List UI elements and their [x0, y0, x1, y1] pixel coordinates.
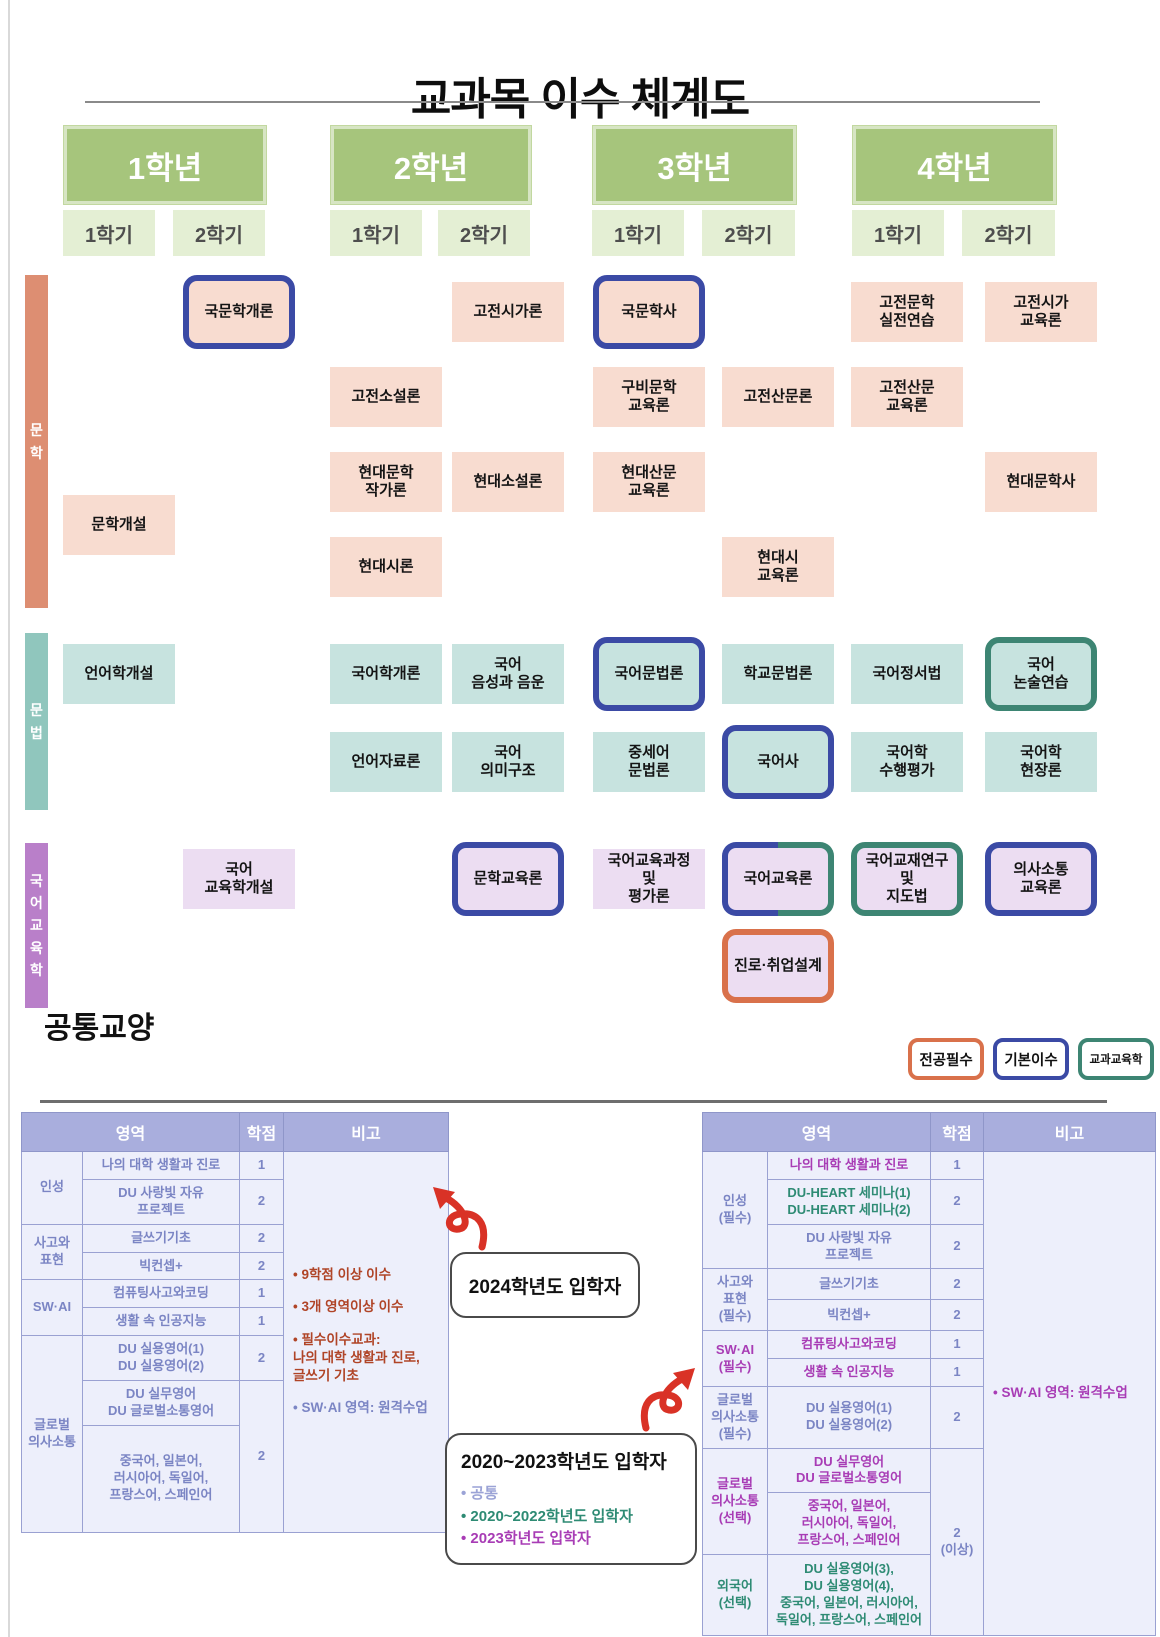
table-cell: 중국어, 일본어, 러시아어, 독일어, 프랑스어, 스페인어	[83, 1425, 240, 1532]
course-box: 구비문학 교육론	[593, 367, 705, 427]
table-cell: 1	[931, 1331, 984, 1359]
table-cell: 사고와 표현	[22, 1224, 83, 1280]
course-box: 의사소통 교육론	[985, 842, 1097, 916]
table-cell: DU 사랑빛 자유 프로젝트	[83, 1179, 240, 1224]
callout-bullet: • 2020~2022학년도 입학자	[461, 1506, 683, 1529]
table-cell: DU 실용영어(3), DU 실용영어(4), 중국어, 일본어, 러시아어, …	[768, 1555, 931, 1636]
note-cell: • 9학점 이상 이수• 3개 영역이상 이수• 필수이수교과: 나의 대학 생…	[284, 1152, 449, 1533]
course-box: 현대문학 작가론	[330, 452, 442, 512]
table-cell: DU 실용영어(1) DU 실용영어(2)	[768, 1386, 931, 1448]
callout-bullet-list: • 공통• 2020~2022학년도 입학자• 2023학년도 입학자	[461, 1483, 683, 1551]
callout-2024-entrants: 2024학년도 입학자	[450, 1252, 640, 1318]
course-box: 국어학개론	[330, 644, 442, 704]
section-bar-gram: 문 법	[25, 633, 48, 810]
legend-item-subject: 교과교육학	[1078, 1038, 1154, 1080]
table-cell: 2	[240, 1224, 284, 1252]
course-box: 문학개설	[63, 495, 175, 555]
table-cell: SW·AI	[22, 1280, 83, 1336]
callout-title: 2020~2023학년도 입학자	[461, 1447, 683, 1474]
callout-bullet: • 2023학년도 입학자	[461, 1528, 683, 1551]
course-box: 현대산문 교육론	[593, 452, 705, 512]
callout-2020-2023-entrants: 2020~2023학년도 입학자 • 공통• 2020~2022학년도 입학자•…	[445, 1433, 697, 1565]
year-header-4: 4학년	[852, 125, 1057, 205]
semester-header: 2학기	[438, 210, 530, 256]
course-box: 국어학 수행평가	[851, 732, 963, 792]
course-box: 국어문법론	[593, 637, 705, 711]
year-header-3: 3학년	[592, 125, 797, 205]
table-cell: 생활 속 인공지능	[768, 1359, 931, 1387]
column-header: 학점	[931, 1113, 984, 1152]
course-box: 국어정서법	[851, 644, 963, 704]
table-cell: 컴퓨팅사고와코딩	[83, 1280, 240, 1308]
table-cell: 글로벌 의사소통 (선택)	[703, 1448, 768, 1554]
table-cell: 인성	[22, 1152, 83, 1225]
course-box: 현대소설론	[452, 452, 564, 512]
semester-header: 1학기	[852, 210, 944, 256]
table-header-row: 영역학점비고	[22, 1113, 449, 1152]
table-cell: 생활 속 인공지능	[83, 1308, 240, 1336]
semester-header: 2학기	[962, 210, 1055, 256]
table-cell: 외국어 (선택)	[703, 1555, 768, 1636]
table-cell: 1	[240, 1308, 284, 1336]
course-box: 국어교재연구 및 지도법	[851, 842, 963, 916]
table-cell: 컴퓨팅사고와코딩	[768, 1331, 931, 1359]
course-box: 국어 논술연습	[985, 637, 1097, 711]
year-header-1: 1학년	[63, 125, 267, 205]
table-cell: DU-HEART 세미나(1) DU-HEART 세미나(2)	[768, 1179, 931, 1224]
table-cell: 1	[931, 1152, 984, 1180]
table-header-row: 영역학점비고	[703, 1113, 1156, 1152]
course-box: 국어 음성과 음운	[452, 644, 564, 704]
table-row: 인성 (필수)나의 대학 생활과 진로1• SW·AI 영역: 원격수업	[703, 1152, 1156, 1180]
course-box: 고전산문론	[722, 367, 834, 427]
red-curved-arrow-up-right-icon	[636, 1358, 698, 1432]
table-cell: 2	[931, 1224, 984, 1269]
course-box: 국문학사	[593, 275, 705, 349]
note-item: • 9학점 이상 이수	[293, 1266, 444, 1284]
legend-item-basic: 기본이수	[993, 1038, 1069, 1080]
table-cell: 글로벌 의사소통 (필수)	[703, 1386, 768, 1448]
course-box: 학교문법론	[722, 644, 834, 704]
semester-header: 1학기	[592, 210, 684, 256]
table-cell: 빅컨셉+	[83, 1252, 240, 1280]
table-cell: 2	[240, 1381, 284, 1533]
semester-header: 1학기	[330, 210, 422, 256]
semester-header: 2학기	[173, 210, 265, 256]
course-box: 고전문학 실전연습	[851, 282, 963, 342]
table-row: 인성나의 대학 생활과 진로1• 9학점 이상 이수• 3개 영역이상 이수• …	[22, 1152, 449, 1180]
course-box: 국어학 현장론	[985, 732, 1097, 792]
course-box: 언어자료론	[330, 732, 442, 792]
page-title: 교과목 이수 체계도	[0, 63, 1160, 127]
table-cell: 인성 (필수)	[703, 1152, 768, 1269]
table-cell: DU 실용영어(1) DU 실용영어(2)	[83, 1336, 240, 1381]
table-cell: 중국어, 일본어, 러시아어, 독일어, 프랑스어, 스페인어	[768, 1493, 931, 1555]
common-liberal-arts-title: 공통교양	[44, 1003, 154, 1047]
table-cell: SW·AI (필수)	[703, 1331, 768, 1387]
table-cell: 나의 대학 생활과 진로	[83, 1152, 240, 1180]
course-box: 국문학개론	[183, 275, 295, 349]
table-cell: DU 실무영어 DU 글로벌소통영어	[83, 1381, 240, 1426]
note-item: • 3개 영역이상 이수	[293, 1298, 444, 1316]
table-cell: 1	[240, 1280, 284, 1308]
column-header: 비고	[284, 1113, 449, 1152]
legend-item-major: 전공필수	[908, 1038, 984, 1080]
section-bar-edu: 국 어 교 육 학	[25, 843, 48, 1008]
table-cell: 2	[931, 1179, 984, 1224]
course-box: 진로·취업설계	[722, 929, 834, 1003]
table-cell: 글로벌 의사소통	[22, 1336, 83, 1533]
course-box: 고전산문 교육론	[851, 367, 963, 427]
course-box: 국어교육과정 및 평가론	[593, 849, 705, 909]
column-header: 영역	[22, 1113, 240, 1152]
semester-header: 1학기	[63, 210, 155, 256]
red-curved-arrow-up-left-icon	[430, 1183, 492, 1251]
column-header: 영역	[703, 1113, 931, 1152]
note-item: • SW·AI 영역: 원격수업	[293, 1399, 444, 1417]
section-bar-lit: 문 학	[25, 275, 48, 608]
table-cell: 나의 대학 생활과 진로	[768, 1152, 931, 1180]
note-cell: • SW·AI 영역: 원격수업	[984, 1152, 1156, 1636]
course-box: 고전소설론	[330, 367, 442, 427]
table-cell: 빅컨셉+	[768, 1300, 931, 1331]
course-box: 고전시가 교육론	[985, 282, 1097, 342]
table-cell: 2	[931, 1300, 984, 1331]
table-cell: 2	[931, 1269, 984, 1300]
course-box: 국어사	[722, 725, 834, 799]
note-item: • SW·AI 영역: 원격수업	[993, 1384, 1151, 1402]
table-cell: 2	[240, 1336, 284, 1381]
semester-header: 2학기	[702, 210, 795, 256]
course-box: 언어학개설	[63, 644, 175, 704]
course-box: 국어 교육학개설	[183, 849, 295, 909]
column-header: 학점	[240, 1113, 284, 1152]
table-cell: 2 (이상)	[931, 1448, 984, 1635]
table-cell: DU 사랑빛 자유 프로젝트	[768, 1224, 931, 1269]
course-box: 현대문학사	[985, 452, 1097, 512]
requirements-table-2020-2023: 영역학점비고인성 (필수)나의 대학 생활과 진로1• SW·AI 영역: 원격…	[702, 1112, 1156, 1636]
table-cell: 2	[240, 1252, 284, 1280]
column-header: 비고	[984, 1113, 1156, 1152]
year-header-2: 2학년	[330, 125, 532, 205]
table-cell: 2	[240, 1179, 284, 1224]
table-cell: 글쓰기기초	[768, 1269, 931, 1300]
note-item: • 필수이수교과: 나의 대학 생활과 진로, 글쓰기 기초	[293, 1331, 444, 1386]
table-cell: 2	[931, 1386, 984, 1448]
course-box: 고전시가론	[452, 282, 564, 342]
table-cell: 글쓰기기초	[83, 1224, 240, 1252]
course-box: 국어 의미구조	[452, 732, 564, 792]
table-cell: 사고와 표현 (필수)	[703, 1269, 768, 1331]
table-cell: 1	[240, 1152, 284, 1180]
common-section-divider	[40, 1100, 1107, 1103]
course-box: 현대시론	[330, 537, 442, 597]
course-box: 문학교육론	[452, 842, 564, 916]
curriculum-chart-page: 교과목 이수 체계도 1학년1학기2학기2학년1학기2학기3학년1학기2학기4학…	[0, 0, 1160, 1637]
table-cell: 1	[931, 1359, 984, 1387]
course-box: 현대시 교육론	[722, 537, 834, 597]
requirements-table-2024: 영역학점비고인성나의 대학 생활과 진로1• 9학점 이상 이수• 3개 영역이…	[21, 1112, 449, 1533]
callout-bullet: • 공통	[461, 1483, 683, 1506]
table-cell: DU 실무영어 DU 글로벌소통영어	[768, 1448, 931, 1493]
course-box: 국어교육론	[722, 842, 834, 916]
title-divider	[85, 101, 1040, 103]
course-box: 중세어 문법론	[593, 732, 705, 792]
page-edge-strip	[8, 0, 10, 1637]
course-box-label: 국어교육론	[728, 848, 828, 910]
